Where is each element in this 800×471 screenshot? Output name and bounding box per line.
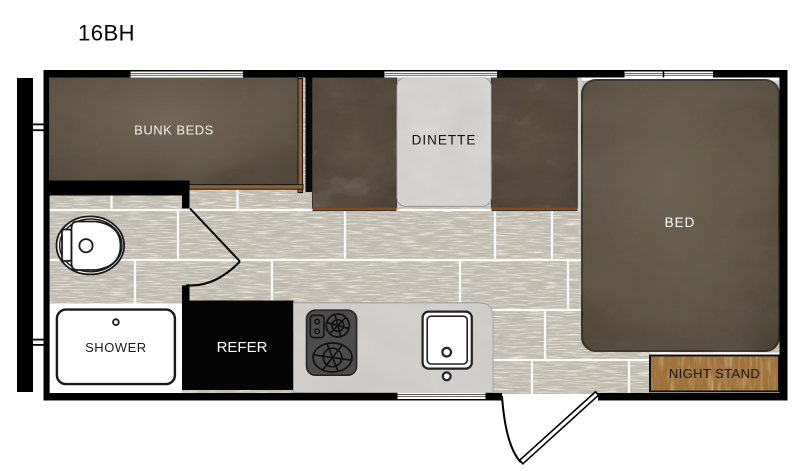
svg-text:BUNK BEDS: BUNK BEDS <box>134 123 214 138</box>
svg-text:DINETTE: DINETTE <box>412 133 477 148</box>
svg-text:16BH: 16BH <box>78 21 135 46</box>
svg-text:NIGHT STAND: NIGHT STAND <box>669 366 760 381</box>
svg-text:BED: BED <box>665 215 696 230</box>
svg-text:REFER: REFER <box>217 339 268 356</box>
svg-text:SHOWER: SHOWER <box>85 340 147 355</box>
